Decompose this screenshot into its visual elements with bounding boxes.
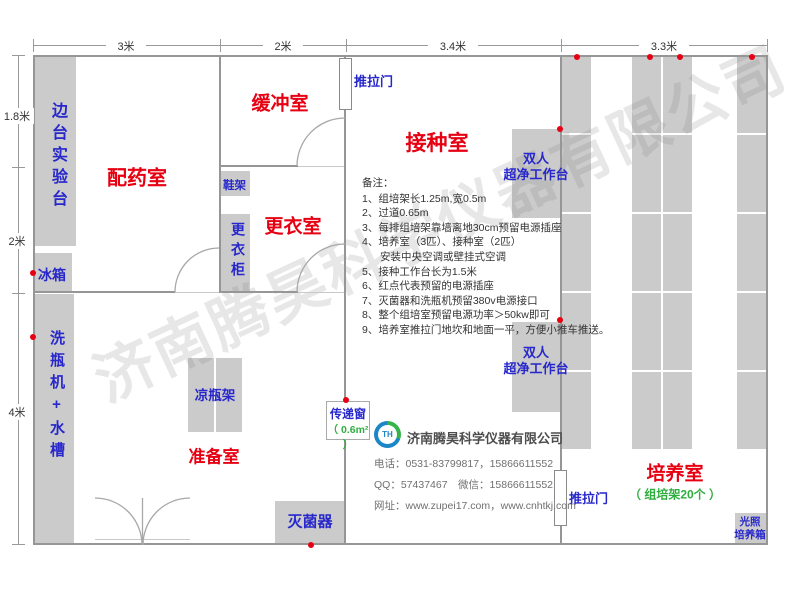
power-outlet-dot xyxy=(647,54,653,60)
wall-dispensing-right xyxy=(219,55,221,293)
dim-left-4m: 4米 xyxy=(2,404,32,420)
note-item: 3、每排组培架靠墙离地30cm预留电源插座 xyxy=(362,221,609,236)
power-outlet-dot xyxy=(308,542,314,548)
power-outlet-dot xyxy=(557,126,563,132)
clean-bench-bottom-line1: 双人 xyxy=(500,345,572,361)
shoe-rack-label: 鞋架 xyxy=(223,177,246,193)
note-item: 5、接种工作台长为1.5米 xyxy=(362,265,609,280)
company-qq-wechat: QQ：57437467 微信：15866611552 xyxy=(374,477,576,492)
company-phone: 电话：0531-83799817，15866611552 xyxy=(374,456,576,471)
room-label-preparation: 准备室 xyxy=(189,443,240,468)
clean-bench-bottom-line2: 超净工作台 xyxy=(500,361,572,377)
fridge-label: 冰箱 xyxy=(38,265,66,285)
dim-top-2m: 2米 xyxy=(263,38,303,54)
company-website: 网址：www.zupei17.com，www.cnhtkj.com xyxy=(374,498,576,513)
dim-left-1-8m: 1.8米 xyxy=(0,108,34,124)
clean-bench-top-line1: 双人 xyxy=(500,151,572,167)
note-item: 1、组培架长1.25m,宽0.5m xyxy=(362,192,609,207)
note-item-continued: 安装中央空调或壁挂式空调 xyxy=(362,250,609,265)
power-outlet-dot xyxy=(343,397,349,403)
wall-changing-bottom xyxy=(219,291,298,293)
light-incubator-line2: 培养箱 xyxy=(730,529,770,542)
note-item: 4、培养室（3匹）、接种室（2匹） xyxy=(362,235,609,250)
note-item: 9、培养室推拉门地坎和地面一平，方便小推车推送。 xyxy=(362,323,609,338)
power-outlet-dot xyxy=(749,54,755,60)
company-name: 济南腾昊科学仪器有限公司 xyxy=(407,418,576,447)
notes-block: 备注： 1、组培架长1.25m,宽0.5m 2、过道0.65m 3、每排组培架靠… xyxy=(362,176,609,338)
culture-rack-count: （ 组培架20个 ） xyxy=(629,486,721,503)
wall-buffer-changing xyxy=(219,165,298,167)
dim-top-3m: 3米 xyxy=(106,38,146,54)
wall-dispensing-bottom xyxy=(33,291,175,293)
note-item: 8、整个组培室预留电源功率＞50kw即可 xyxy=(362,308,609,323)
locker-label: 更衣柜 xyxy=(228,222,248,282)
bottle-cooling-rack-label: 凉瓶架 xyxy=(195,384,236,404)
room-label-buffer: 缓冲室 xyxy=(251,89,308,116)
note-item: 6、红点代表预留的电源插座 xyxy=(362,279,609,294)
left-dimension-line xyxy=(18,55,19,545)
power-outlet-dot xyxy=(30,270,36,276)
dim-left-2m: 2米 xyxy=(2,233,32,249)
room-label-changing: 更衣室 xyxy=(264,212,321,239)
sterilizer-label: 灭菌器 xyxy=(287,511,332,532)
room-label-inoculation: 接种室 xyxy=(406,127,469,157)
note-item: 2、过道0.65m xyxy=(362,206,609,221)
power-outlet-dot xyxy=(574,54,580,60)
company-logo-text: TH xyxy=(378,425,397,444)
pass-window-area: （ 0.6m² ） xyxy=(327,422,369,452)
wall-inoculation-left xyxy=(344,55,346,545)
company-logo: TH xyxy=(374,421,401,448)
dim-top-3-4m: 3.4米 xyxy=(428,38,478,54)
dim-top-3-3m: 3.3米 xyxy=(639,38,689,54)
pass-window-label: 传递窗 xyxy=(327,405,369,422)
pass-window: 传递窗 （ 0.6m² ） xyxy=(326,401,370,440)
power-outlet-dot xyxy=(557,317,563,323)
side-bench-label: 边台实验台 xyxy=(45,102,69,212)
power-outlet-dot xyxy=(677,54,683,60)
company-block: TH 济南腾昊科学仪器有限公司 电话：0531-83799817，1586661… xyxy=(374,418,576,513)
light-incubator-label: 光照 培养箱 xyxy=(730,516,770,541)
bottle-washer-label: 洗瓶机+水槽 xyxy=(46,330,67,464)
power-outlet-dot xyxy=(30,334,36,340)
sliding-door-label-top: 推拉门 xyxy=(354,71,393,90)
light-incubator-line1: 光照 xyxy=(730,516,770,529)
notes-title: 备注： xyxy=(362,176,609,191)
sliding-door-buffer xyxy=(339,58,352,110)
floorplan-canvas: 济南腾昊科学仪器有限公司 3米 2米 3.4米 3.3米 1.8米 2米 4米 xyxy=(0,0,800,600)
clean-bench-label-bottom: 双人 超净工作台 xyxy=(500,345,572,377)
note-item: 7、灭菌器和洗瓶机预留380v电源接口 xyxy=(362,294,609,309)
room-label-dispensing: 配药室 xyxy=(107,162,167,191)
room-label-culture: 培养室 xyxy=(646,459,703,486)
